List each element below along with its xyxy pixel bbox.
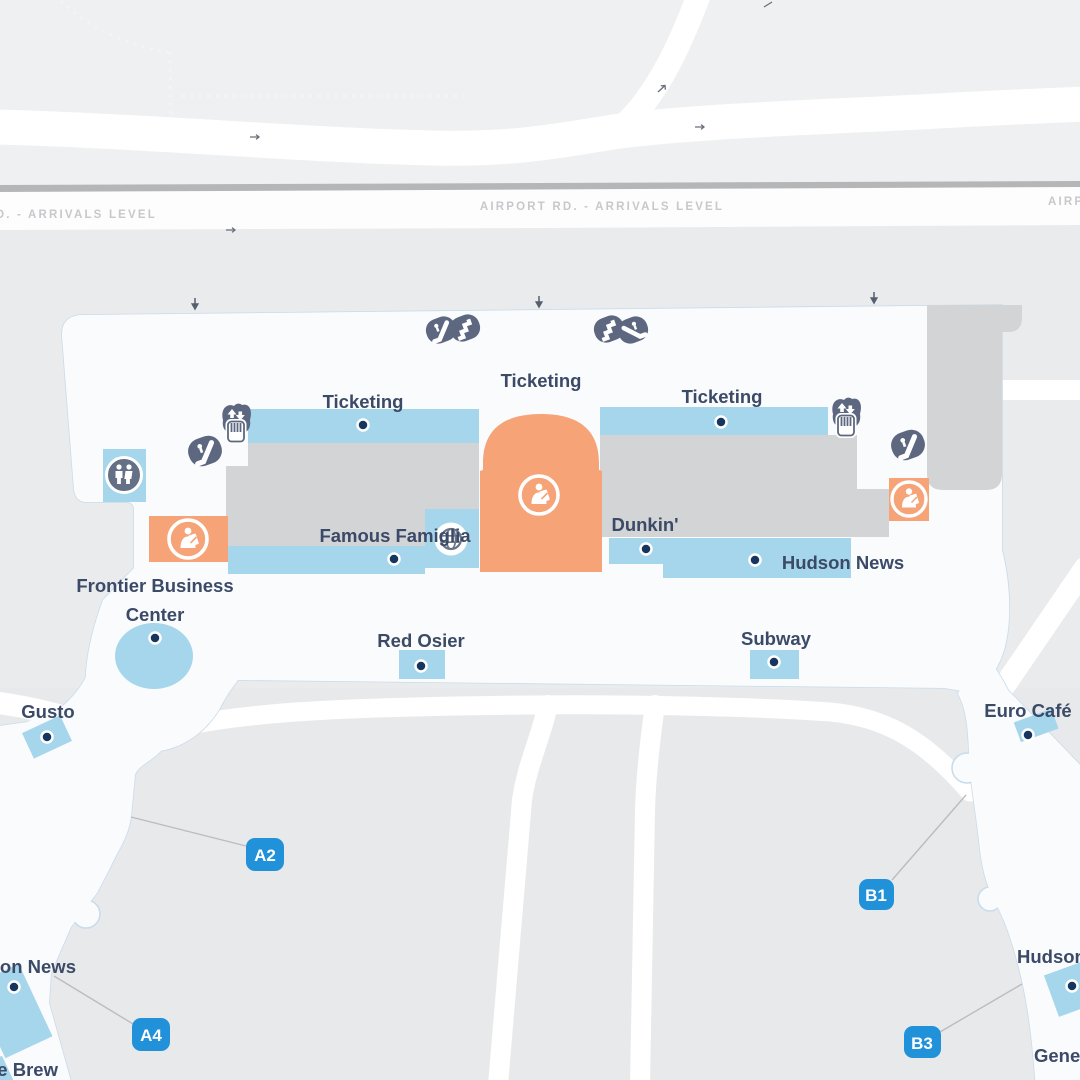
svg-text:Hudson News: Hudson News [0, 956, 76, 977]
svg-text:Ticketing: Ticketing [682, 386, 763, 407]
svg-text:Subway: Subway [741, 628, 812, 649]
svg-text:AIRPORT R: AIRPORT R [1048, 196, 1080, 208]
svg-text:Center: Center [126, 604, 185, 625]
svg-text:Euro Café: Euro Café [984, 700, 1071, 721]
svg-text:B1: B1 [865, 886, 887, 905]
svg-text:Hudson: Hudson [1017, 946, 1080, 967]
svg-text:Hudson News: Hudson News [782, 552, 904, 573]
svg-text:RD. - ARRIVALS LEVEL: RD. - ARRIVALS LEVEL [0, 209, 157, 221]
svg-text:Famous Famiglia: Famous Famiglia [319, 525, 471, 546]
svg-text:Ticketing: Ticketing [501, 370, 582, 391]
svg-text:Ticketing: Ticketing [323, 391, 404, 412]
svg-text:Frontier Business: Frontier Business [76, 575, 233, 596]
svg-text:ue Brew: ue Brew [0, 1059, 59, 1080]
svg-text:B3: B3 [911, 1034, 933, 1053]
svg-text:Gusto: Gusto [21, 701, 74, 722]
svg-text:A4: A4 [140, 1026, 162, 1045]
svg-text:Dunkin': Dunkin' [611, 514, 678, 535]
svg-text:A2: A2 [254, 846, 276, 865]
svg-text:Red Osier: Red Osier [377, 630, 464, 651]
svg-text:AIRPORT RD. - ARRIVALS LEVEL: AIRPORT RD. - ARRIVALS LEVEL [480, 201, 724, 213]
svg-text:Genera: Genera [1034, 1045, 1080, 1066]
